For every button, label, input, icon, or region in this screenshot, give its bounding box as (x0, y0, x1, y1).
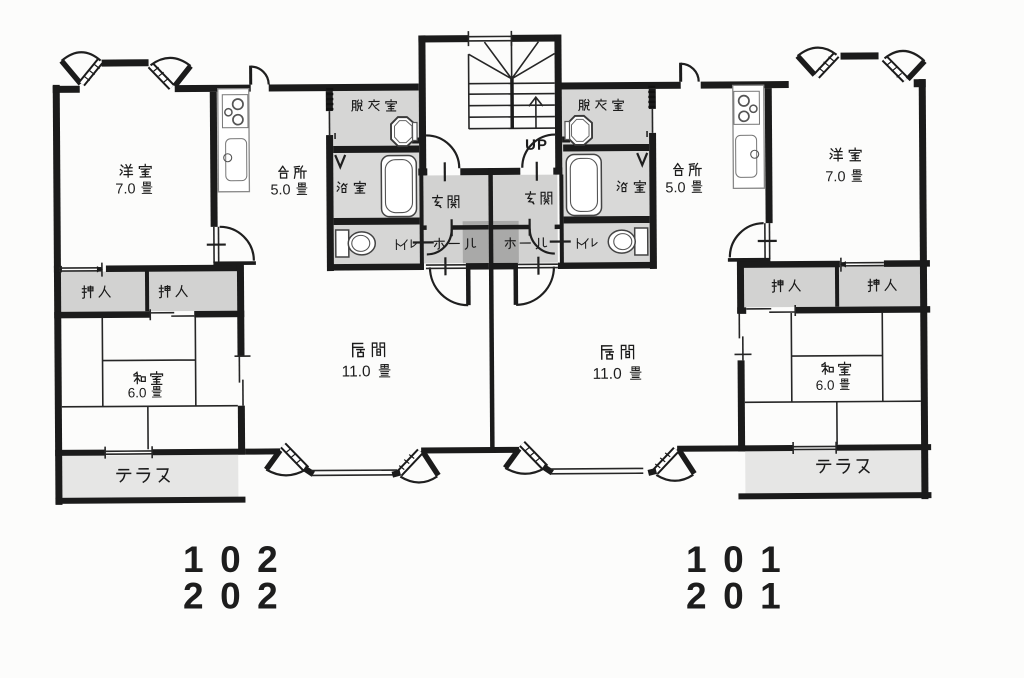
svg-text:101: 101 (686, 539, 797, 580)
svg-text:202: 202 (183, 576, 294, 617)
svg-text:7.0: 7.0 (825, 169, 845, 185)
svg-text:5.0: 5.0 (665, 180, 685, 196)
svg-text:201: 201 (686, 576, 797, 617)
svg-text:6.0: 6.0 (128, 385, 147, 400)
svg-text:5.0: 5.0 (270, 182, 290, 198)
svg-text:7.0: 7.0 (115, 181, 135, 197)
svg-text:6.0: 6.0 (816, 378, 835, 393)
svg-text:102: 102 (183, 539, 294, 580)
svg-text:11.0: 11.0 (593, 366, 623, 383)
svg-text:11.0: 11.0 (342, 363, 372, 380)
